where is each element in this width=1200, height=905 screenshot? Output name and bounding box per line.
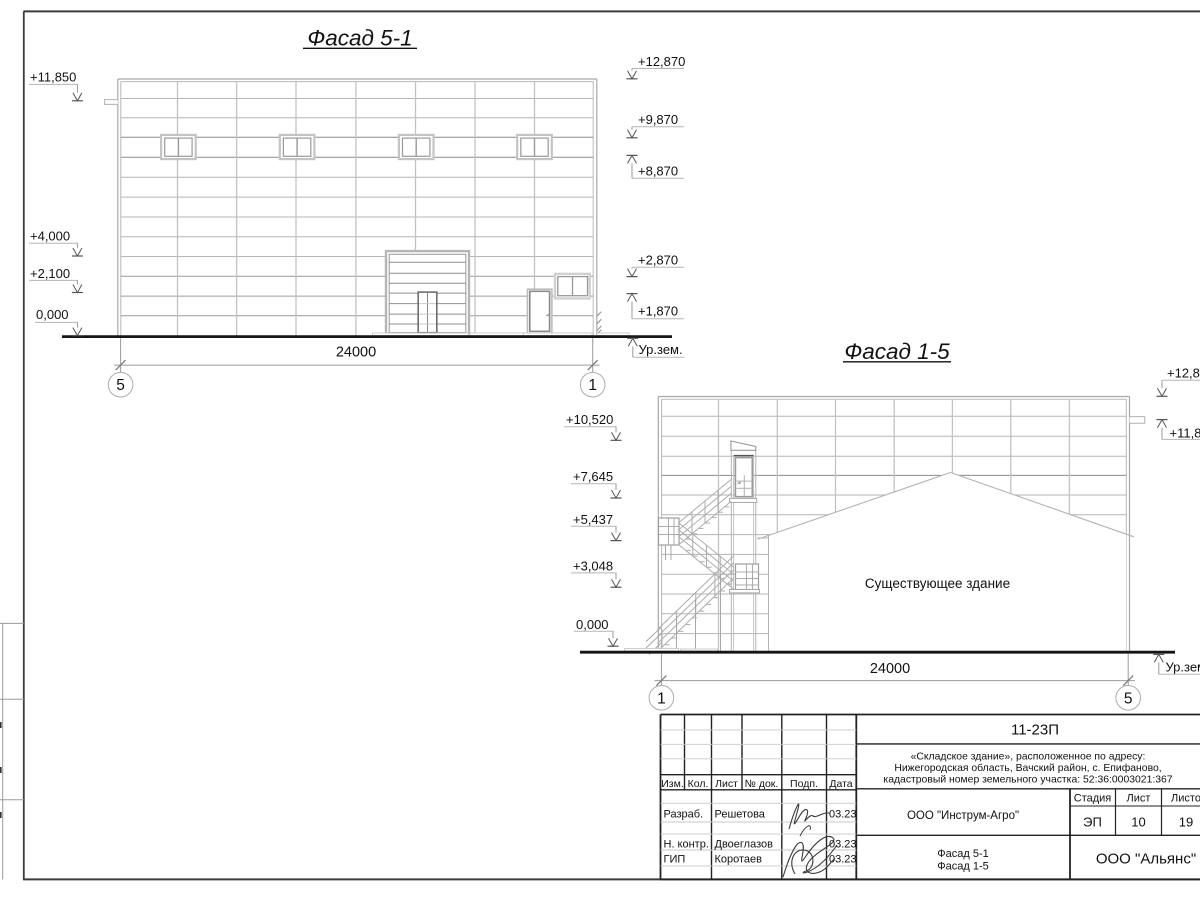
svg-text:ЭП: ЭП	[1083, 815, 1102, 830]
svg-text:Фасад 1-5: Фасад 1-5	[844, 339, 950, 364]
svg-text:Ур.зем.: Ур.зем.	[639, 342, 683, 357]
svg-text:Подп.: Подп.	[790, 778, 818, 790]
svg-text:№ док.: № док.	[745, 778, 779, 790]
svg-text:ООО "Инструм-Агро": ООО "Инструм-Агро"	[907, 810, 1019, 822]
svg-text:03.23: 03.23	[829, 809, 857, 821]
svg-text:+9,870: +9,870	[638, 112, 678, 127]
svg-text:Фасад 1-5: Фасад 1-5	[937, 861, 988, 873]
svg-text:Коротаев: Коротаев	[715, 854, 763, 866]
svg-text:+12,870: +12,870	[638, 54, 685, 69]
svg-text:кадастровый номер земельного у: кадастровый номер земельного участка: 52…	[883, 775, 1172, 786]
svg-text:+11,850: +11,850	[1170, 426, 1200, 441]
svg-text:+3,048: +3,048	[573, 558, 613, 573]
svg-text:Нижегородская область, Вачский: Нижегородская область, Вачский район, с.…	[894, 762, 1161, 774]
svg-text:Кол.: Кол.	[688, 778, 709, 790]
svg-text:Существующее здание: Существующее здание	[865, 576, 1010, 591]
svg-text:Фасад 5-1: Фасад 5-1	[307, 26, 412, 51]
svg-text:5: 5	[116, 377, 125, 394]
svg-text:11-23П: 11-23П	[1011, 722, 1059, 739]
svg-text:Дата: Дата	[829, 778, 852, 790]
svg-text:1: 1	[588, 377, 597, 394]
svg-text:Разраб.: Разраб.	[664, 809, 704, 821]
svg-text:24000: 24000	[336, 345, 376, 361]
svg-text:5: 5	[1124, 690, 1133, 707]
svg-text:0,000: 0,000	[36, 307, 69, 322]
svg-text:0,000: 0,000	[576, 617, 609, 632]
svg-text:+2,870: +2,870	[638, 253, 678, 268]
svg-text:Ур.зем: Ур.зем	[1166, 660, 1200, 675]
svg-text:+11,850: +11,850	[30, 70, 76, 85]
svg-text:+8,870: +8,870	[638, 164, 678, 179]
svg-text:+4,000: +4,000	[30, 229, 70, 244]
svg-text:+7,645: +7,645	[573, 469, 613, 484]
svg-text:Лист: Лист	[715, 778, 738, 790]
svg-text:+2,100: +2,100	[30, 266, 70, 281]
svg-text:Решетова: Решетова	[715, 809, 766, 821]
svg-text:24000: 24000	[870, 661, 910, 677]
svg-text:Стадия: Стадия	[1074, 793, 1112, 805]
svg-text:«Складское здание», расположен: «Складское здание», расположенное по адр…	[911, 752, 1146, 763]
svg-text:ООО "Альянс": ООО "Альянс"	[1096, 851, 1196, 868]
svg-text:10: 10	[1131, 815, 1145, 830]
svg-text:+10,520: +10,520	[566, 412, 613, 427]
svg-text:ГИП: ГИП	[664, 854, 686, 866]
svg-text:Лист: Лист	[1127, 793, 1151, 805]
svg-text:03.23: 03.23	[829, 839, 857, 851]
svg-text:Н. контр.: Н. контр.	[664, 839, 709, 851]
svg-text:+12,870: +12,870	[1167, 366, 1200, 381]
svg-text:Изм.: Изм.	[661, 778, 684, 790]
svg-text:+1,870: +1,870	[638, 304, 678, 319]
svg-text:1: 1	[657, 690, 666, 707]
svg-text:Двоеглазов: Двоеглазов	[715, 839, 774, 851]
svg-text:19: 19	[1179, 815, 1193, 830]
svg-text:Листо: Листо	[1171, 793, 1200, 805]
svg-text:+5,437: +5,437	[573, 512, 613, 527]
svg-text:Фасад 5-1: Фасад 5-1	[937, 848, 988, 860]
